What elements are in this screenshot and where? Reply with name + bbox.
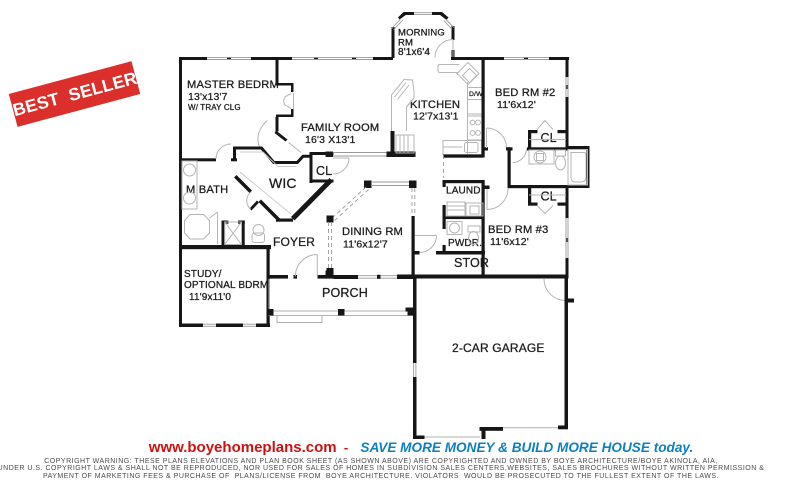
- svg-text:8'1x6'4: 8'1x6'4: [398, 47, 430, 58]
- svg-text:M BATH: M BATH: [186, 184, 228, 196]
- svg-text:MASTER BEDRM: MASTER BEDRM: [187, 79, 279, 91]
- svg-text:FOYER: FOYER: [273, 235, 315, 249]
- svg-text:13'x13'7: 13'x13'7: [188, 91, 228, 103]
- svg-text:PWDR.: PWDR.: [448, 238, 482, 249]
- svg-text:CL: CL: [316, 164, 332, 178]
- svg-text:D/W: D/W: [469, 91, 483, 98]
- svg-text:11'6x12': 11'6x12': [490, 236, 529, 248]
- svg-text:11'6x12': 11'6x12': [497, 99, 536, 111]
- svg-text:LAUND.: LAUND.: [446, 186, 484, 197]
- svg-text:11'9x11'0: 11'9x11'0: [189, 292, 231, 303]
- svg-text:BED RM #2: BED RM #2: [495, 87, 555, 99]
- svg-text:STOR: STOR: [454, 256, 489, 270]
- svg-text:W/ TRAY CLG: W/ TRAY CLG: [188, 103, 241, 112]
- svg-text:WIC: WIC: [269, 175, 297, 191]
- svg-text:DINING RM: DINING RM: [342, 226, 403, 238]
- svg-text:KITCHEN: KITCHEN: [410, 99, 460, 111]
- svg-text:PORCH: PORCH: [322, 286, 368, 300]
- svg-text:11'6x12'7: 11'6x12'7: [343, 239, 388, 251]
- svg-text:FAMILY ROOM: FAMILY ROOM: [301, 122, 379, 134]
- svg-text:STUDY/: STUDY/: [184, 269, 222, 280]
- svg-text:CL: CL: [541, 131, 557, 145]
- svg-text:16'3 X13'1: 16'3 X13'1: [305, 134, 355, 146]
- svg-text:BED RM #3: BED RM #3: [488, 224, 548, 236]
- svg-text:CL: CL: [541, 190, 557, 204]
- svg-text:2-CAR GARAGE: 2-CAR GARAGE: [452, 341, 545, 355]
- svg-text:12'7x13'1: 12'7x13'1: [413, 111, 459, 123]
- svg-text:OPTIONAL BDRM: OPTIONAL BDRM: [184, 280, 268, 291]
